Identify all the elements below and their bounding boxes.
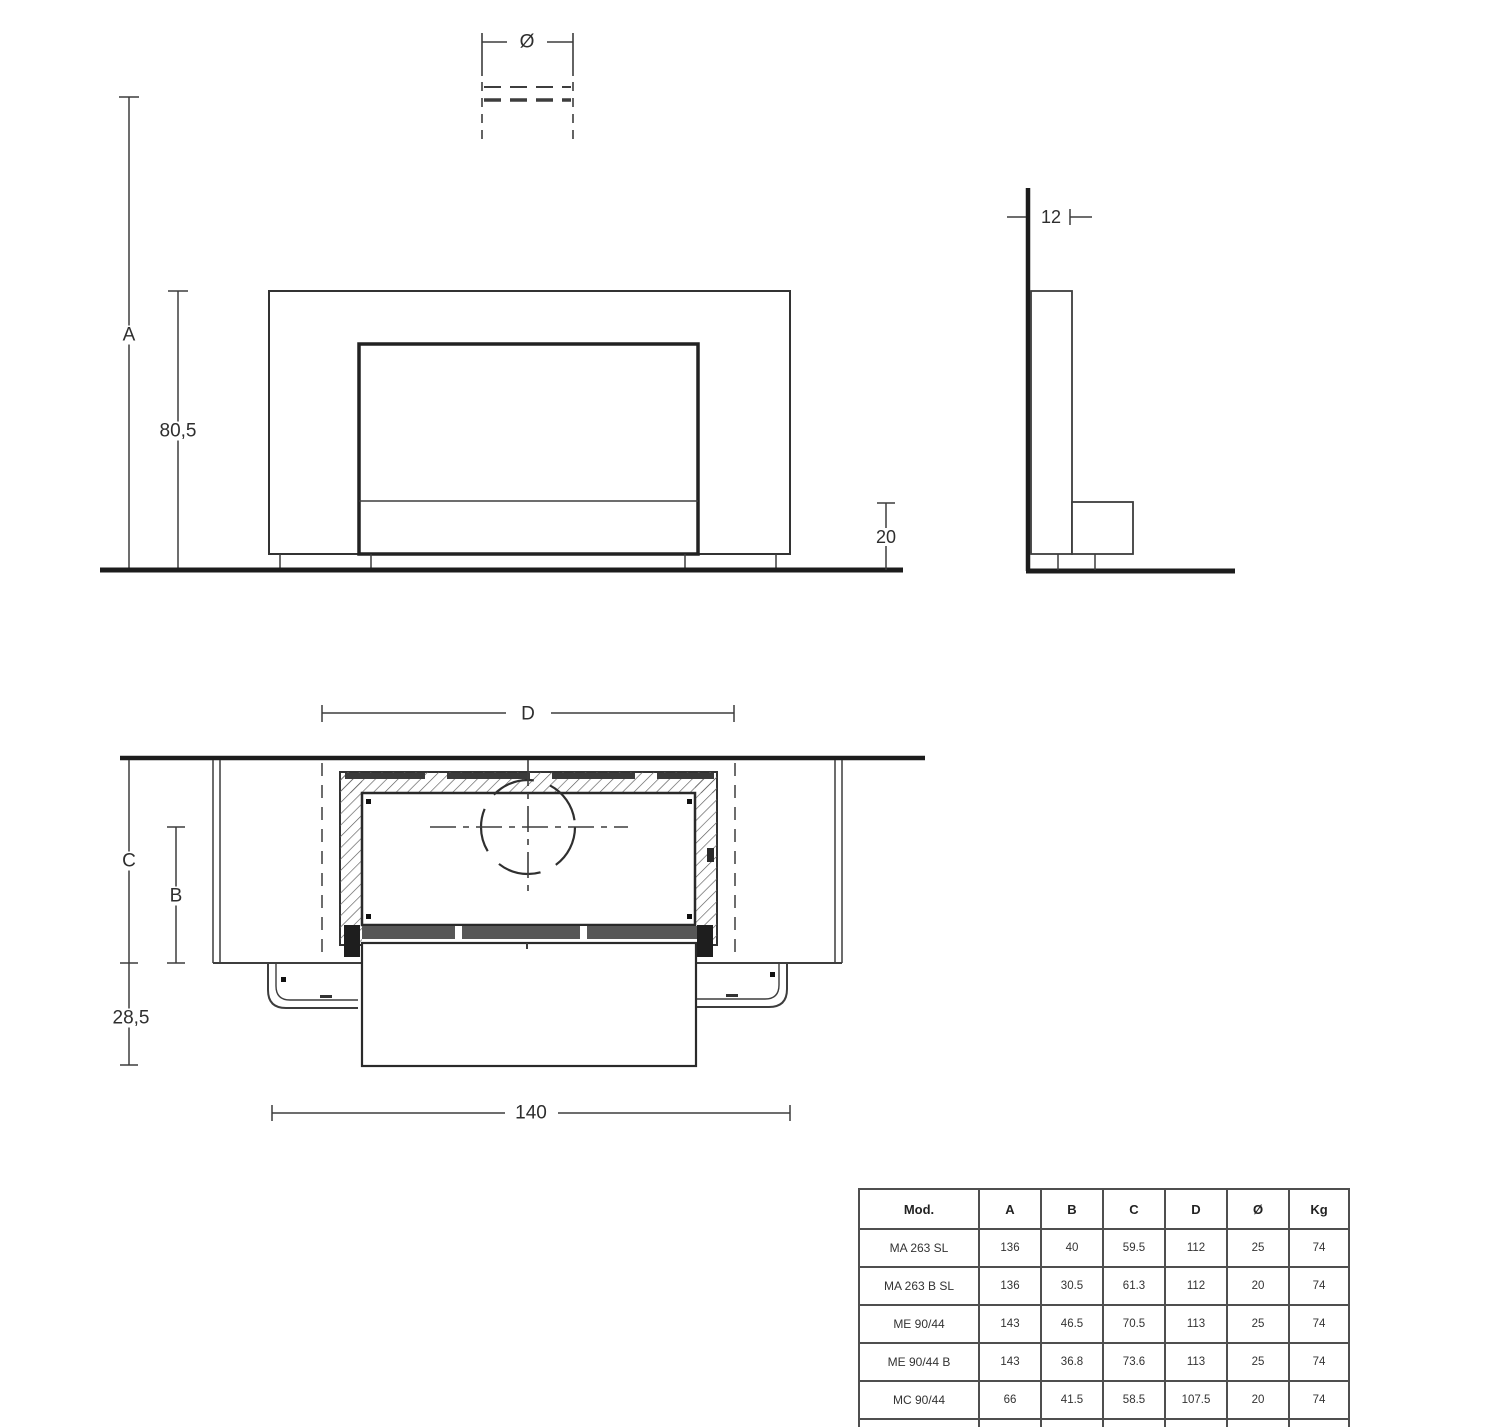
value-d: 113 [1165,1305,1227,1343]
table-row: MC 90/44 66 41.5 58.5 107.5 20 74 [859,1381,1349,1419]
value-dia: 15 [1227,1419,1289,1427]
col-header-mod: Mod. [859,1189,979,1229]
value-d: 112 [1165,1229,1227,1267]
col-header-dia: Ø [1227,1189,1289,1229]
upper-depth-value: 12 [1036,208,1066,226]
value-a: 143 [979,1305,1041,1343]
model-name: IG 90 [859,1419,979,1427]
firebox-depth-label-B: B [165,887,188,906]
value-dia: 25 [1227,1229,1289,1267]
overall-width-value: 140 [510,1104,552,1123]
value-b: 30.5 [1041,1267,1103,1305]
value-d: 103 [1165,1419,1227,1427]
overall-height-label-A: A [118,326,141,345]
value-c: 59.5 [1103,1229,1165,1267]
model-name: MA 263 B SL [859,1267,979,1305]
value-a: 71.5 [979,1419,1041,1427]
value-c: 61.3 [1103,1267,1165,1305]
value-dia: 20 [1227,1381,1289,1419]
value-dia: 20 [1227,1267,1289,1305]
plan-view [120,705,925,1121]
base-height-value: 20 [871,528,901,546]
col-header-kg: Kg [1289,1189,1349,1229]
value-c: 58.5 [1103,1381,1165,1419]
table-row: ME 90/44 143 46.5 70.5 113 25 74 [859,1305,1349,1343]
value-d: 113 [1165,1343,1227,1381]
plan-hearth-front-panel [362,943,696,1066]
hearth-projection-value: 28,5 [108,1009,155,1028]
value-c: 70.5 [1103,1305,1165,1343]
value-dia: 25 [1227,1343,1289,1381]
side-base-body [1072,502,1133,554]
value-d: 107.5 [1165,1381,1227,1419]
total-depth-label-C: C [117,852,141,871]
table-row: MA 263 B SL 136 30.5 61.3 112 20 74 [859,1267,1349,1305]
col-header-c: C [1103,1189,1165,1229]
side-view [1007,188,1235,571]
value-c: 49.5 [1103,1419,1165,1427]
front-view [100,33,903,570]
value-a: 143 [979,1343,1041,1381]
value-kg: 74 [1289,1267,1349,1305]
model-name: ME 90/44 [859,1305,979,1343]
flue-diameter-label: Ø [515,33,540,52]
side-upper-body [1031,291,1072,554]
model-name: MC 90/44 [859,1381,979,1419]
value-kg: 74 [1289,1381,1349,1419]
niche-width-label-D: D [516,705,540,724]
value-b: 46.5 [1041,1305,1103,1343]
value-b: 40 [1041,1229,1103,1267]
plan-right-bracket [697,963,787,1007]
value-kg: 74 [1289,1305,1349,1343]
opening-height-value: 80,5 [155,422,202,441]
model-name: ME 90/44 B [859,1343,979,1381]
model-name: MA 263 SL [859,1229,979,1267]
col-header-b: B [1041,1189,1103,1229]
plan-left-bracket [268,963,358,1008]
side-plinth-feet [1058,554,1095,570]
value-a: 136 [979,1229,1041,1267]
table-row: MA 263 SL 136 40 59.5 112 25 74 [859,1229,1349,1267]
value-c: 73.6 [1103,1343,1165,1381]
table-header-row: Mod. A B C D Ø Kg [859,1189,1349,1229]
front-plinth-feet [280,554,776,569]
value-b: 32 [1041,1419,1103,1427]
value-a: 136 [979,1267,1041,1305]
value-kg: 74 [1289,1229,1349,1267]
value-a: 66 [979,1381,1041,1419]
technical-drawing-page: Ø A 80,5 20 12 D C B 28,5 140 Mod. A B C… [0,0,1500,1427]
value-b: 41.5 [1041,1381,1103,1419]
table-row: ME 90/44 B 143 36.8 73.6 113 25 74 [859,1343,1349,1381]
table-row: IG 90 71.5 32 49.5 103 15 74 [859,1419,1349,1427]
model-dimensions-table: Mod. A B C D Ø Kg MA 263 SL 136 40 59.5 … [858,1188,1350,1427]
value-kg: 74 [1289,1343,1349,1381]
value-d: 112 [1165,1267,1227,1305]
col-header-a: A [979,1189,1041,1229]
value-dia: 25 [1227,1305,1289,1343]
front-firebox-opening [359,344,698,554]
value-kg: 74 [1289,1419,1349,1427]
col-header-d: D [1165,1189,1227,1229]
value-b: 36.8 [1041,1343,1103,1381]
